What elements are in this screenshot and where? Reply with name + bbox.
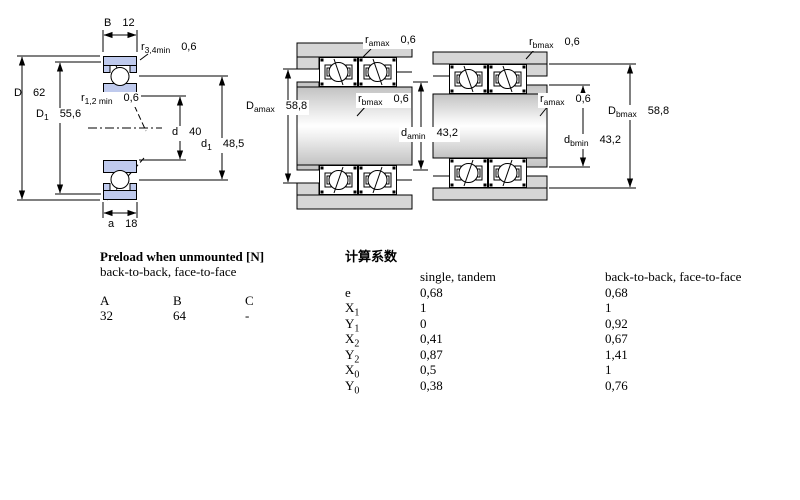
- factors-col-header: back-to-back, face-to-face: [605, 269, 795, 285]
- factor-label: e: [345, 285, 420, 301]
- middle-arrangement: [283, 43, 428, 209]
- preload-table: Preload when unmounted [N] back-to-back,…: [100, 249, 350, 323]
- factor-value: 0,38: [420, 378, 605, 394]
- factor-value: 0,76: [605, 378, 795, 394]
- factors-col-header: single, tandem: [420, 269, 605, 285]
- bearing-unit: [450, 65, 488, 94]
- housing-top: [433, 52, 547, 64]
- factors-title: 计算系数: [345, 249, 795, 264]
- housing-shoulder: [525, 64, 547, 76]
- housing-shoulder: [297, 57, 319, 69]
- factor-label: Y2: [345, 347, 420, 363]
- bearing-ring-bottom: [104, 161, 137, 200]
- preload-value: 64: [173, 308, 245, 323]
- factor-value: 0,5: [420, 362, 605, 378]
- right-arrangement: [433, 50, 636, 200]
- bearing-unit: [489, 159, 527, 188]
- bearing-unit: [450, 159, 488, 188]
- factor-value: 0,41: [420, 331, 605, 347]
- dim-label-r12min: r1,2 min0,6: [79, 92, 141, 107]
- factor-value: 0,68: [605, 285, 795, 301]
- bearing-ring-top: [104, 57, 137, 96]
- shaft: [433, 94, 547, 158]
- housing-shoulder: [297, 183, 319, 195]
- housing-bottom: [433, 188, 547, 200]
- dim-label-ramax-mid: ramax0,6: [363, 34, 418, 49]
- dim-label-r34min: r3,4min0,6: [141, 41, 196, 56]
- dim-label-Damax: Damax58,8: [244, 100, 309, 115]
- bearing-unit: [320, 58, 358, 87]
- dim-label-ramax-right: ramax0,6: [538, 93, 593, 108]
- housing-bottom: [297, 195, 412, 209]
- bearing-unit: [359, 166, 397, 195]
- bearing-unit: [320, 166, 358, 195]
- factor-value: 0,92: [605, 316, 795, 332]
- bearing-unit: [489, 65, 527, 94]
- left-bearing-section: [17, 30, 228, 218]
- factor-value: 0: [420, 316, 605, 332]
- calculation-factors-table: 计算系数 single, tandem back-to-back, face-t…: [345, 249, 795, 393]
- factor-value: 1,41: [605, 347, 795, 363]
- factor-label: Y0: [345, 378, 420, 394]
- factor-value: 1: [420, 300, 605, 316]
- preload-value: -: [245, 308, 305, 323]
- preload-value: 32: [100, 308, 173, 323]
- preload-subtitle: back-to-back, face-to-face: [100, 264, 350, 279]
- dim-label-B: B12: [104, 17, 135, 32]
- factor-value: 1: [605, 300, 795, 316]
- factor-value: 1: [605, 362, 795, 378]
- dim-label-D: D62: [14, 87, 45, 102]
- bearing-spec-page: B12 r3,4min0,6 D62 D155,6 r1,2 min0,6 d4…: [0, 0, 800, 500]
- preload-col-header: C: [245, 293, 305, 308]
- dim-label-d1: d148,5: [199, 138, 246, 153]
- dim-label-rbmax-right: rbmax0,6: [527, 36, 582, 51]
- factor-label: X0: [345, 362, 420, 378]
- preload-title: Preload when unmounted [N]: [100, 249, 350, 264]
- factor-value: 0,68: [420, 285, 605, 301]
- dim-label-Dbmax: Dbmax58,8: [606, 105, 671, 120]
- housing-shoulder: [525, 176, 547, 188]
- factor-label: Y1: [345, 316, 420, 332]
- dim-label-rbmax-mid: rbmax0,6: [356, 93, 411, 108]
- preload-col-header: B: [173, 293, 245, 308]
- dim-label-a: a18: [108, 218, 137, 233]
- preload-col-header: A: [100, 293, 173, 308]
- factor-value: 0,87: [420, 347, 605, 363]
- factor-value: 0,67: [605, 331, 795, 347]
- bearing-unit: [359, 58, 397, 87]
- dim-label-D1: D155,6: [34, 108, 83, 123]
- factor-label: X1: [345, 300, 420, 316]
- factor-label: X2: [345, 331, 420, 347]
- dim-label-damin: damin43,2: [399, 127, 460, 142]
- dim-label-dbmin: dbmin43,2: [562, 134, 623, 149]
